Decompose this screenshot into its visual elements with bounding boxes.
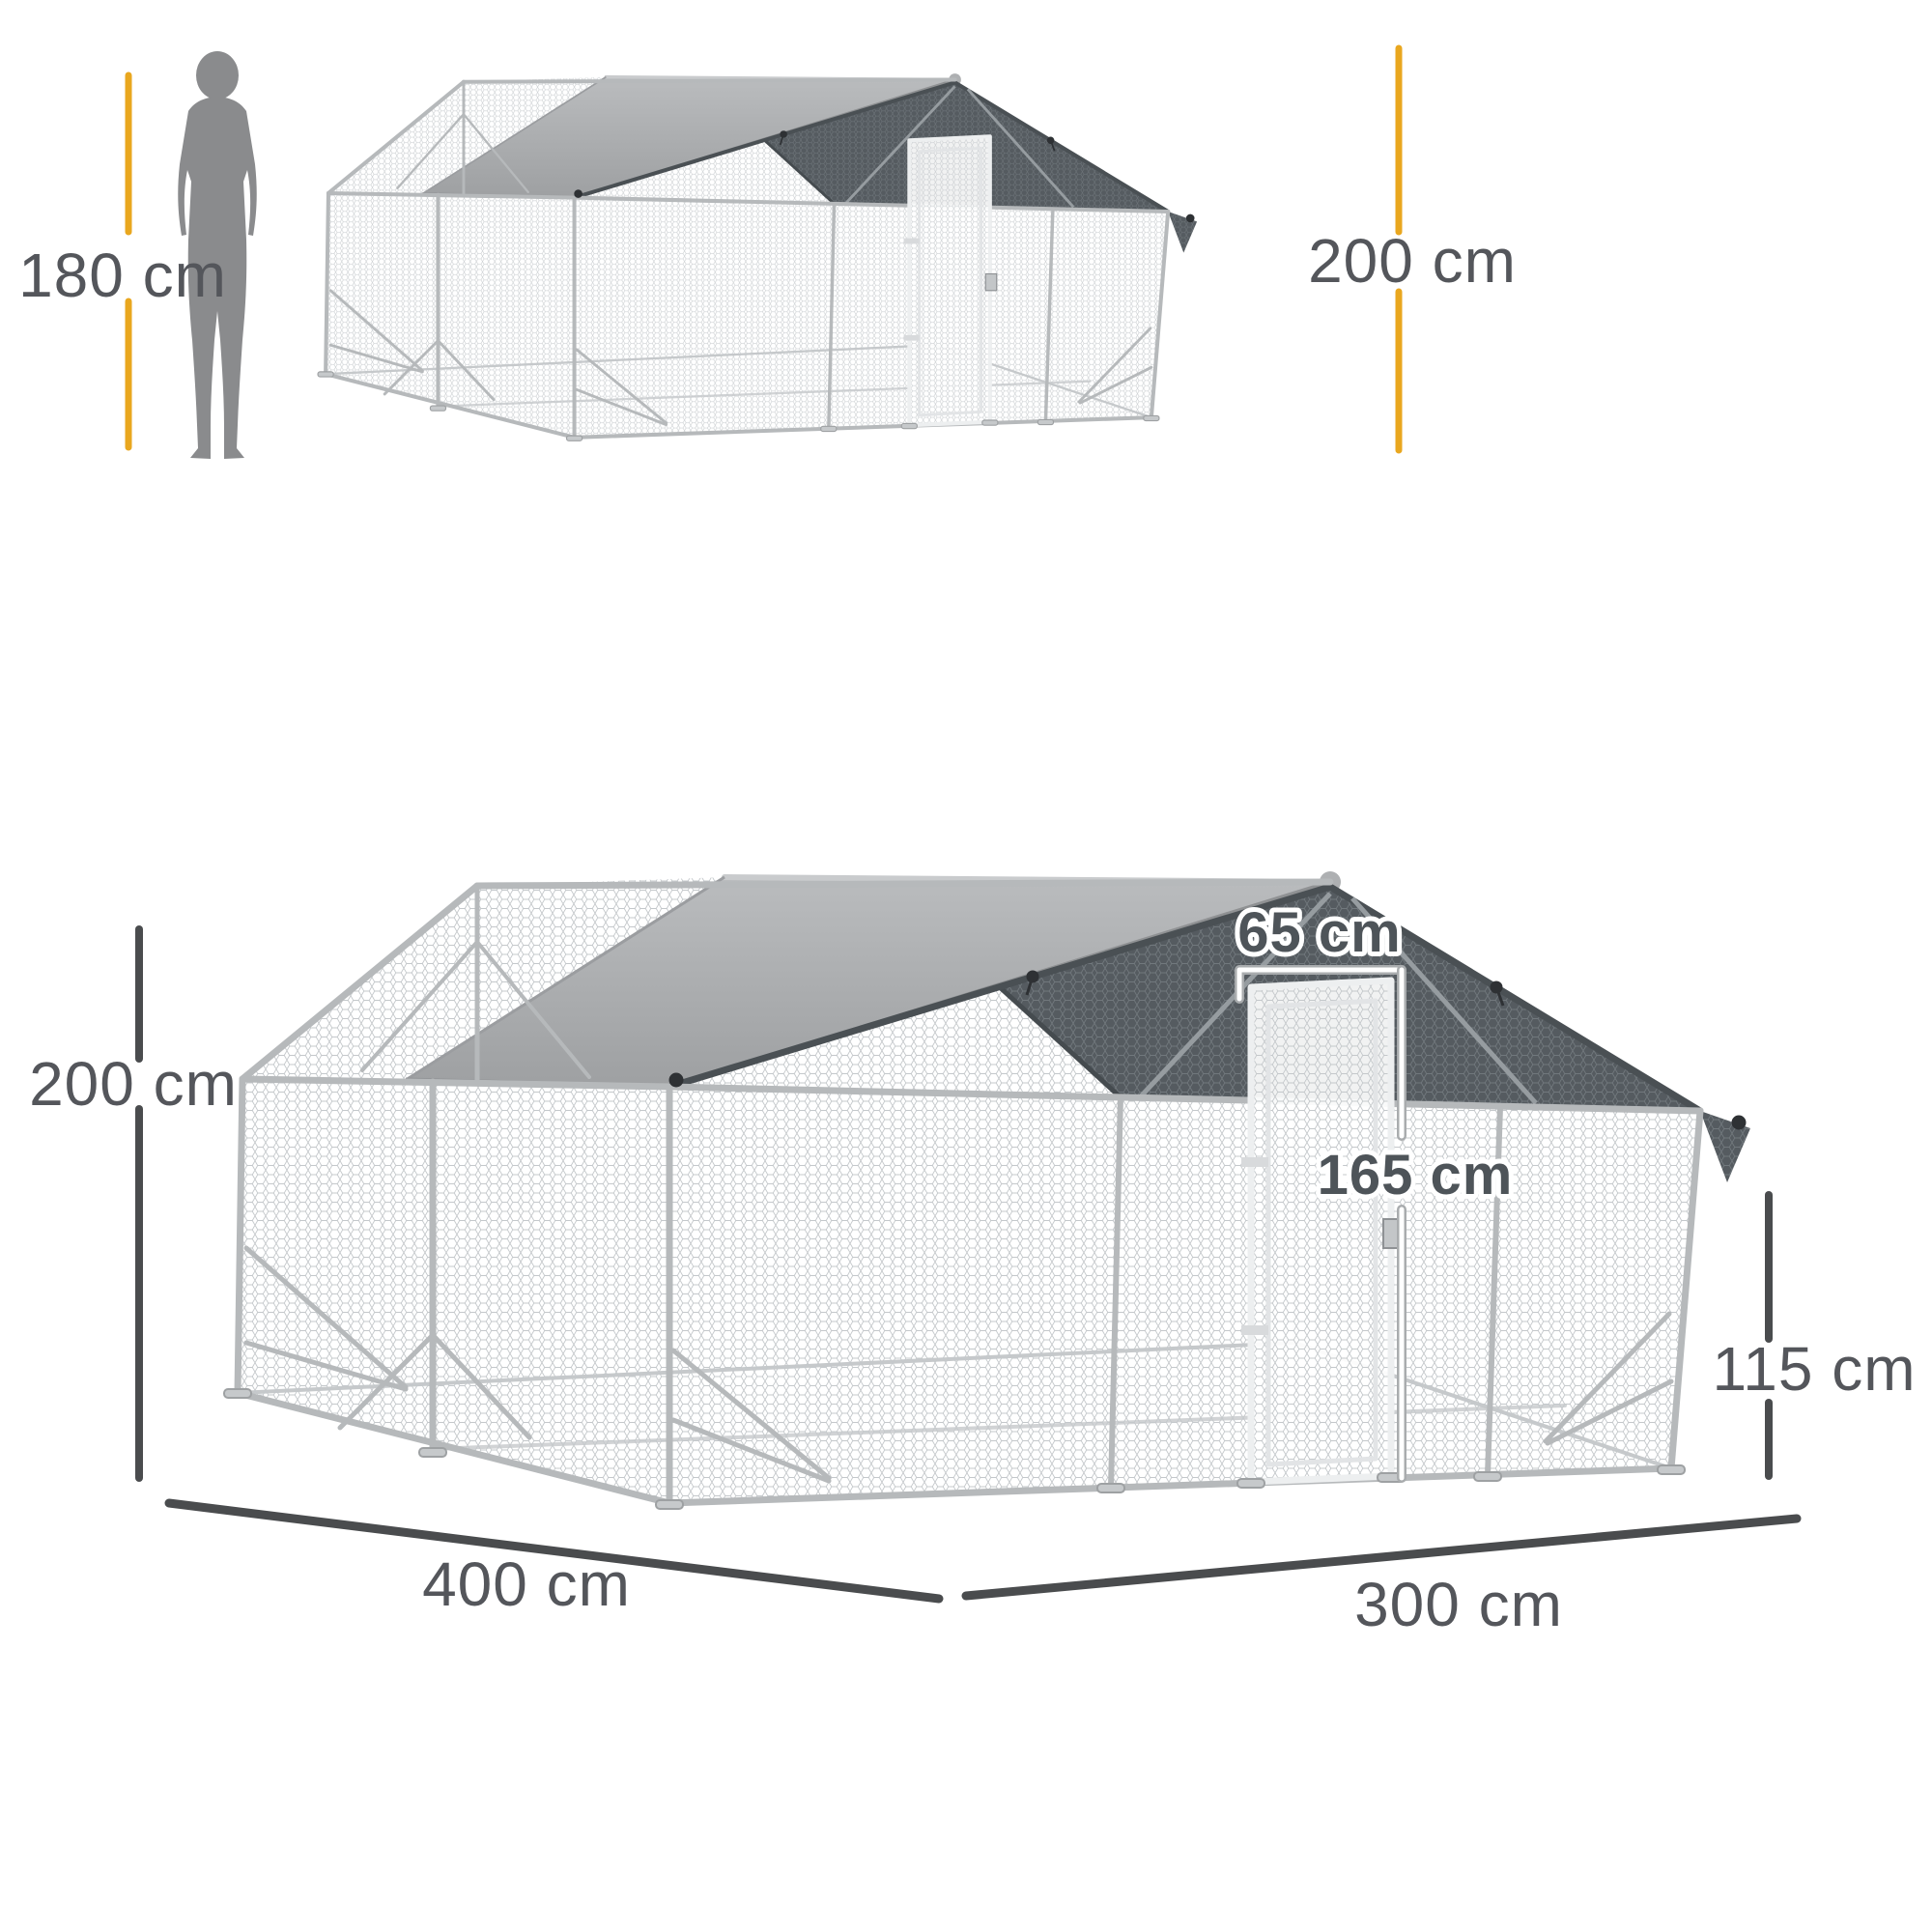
small-coop-height-label: 200 cm bbox=[1308, 226, 1517, 296]
chicken-run-illustration-small bbox=[318, 73, 1197, 440]
length-label: 400 cm bbox=[422, 1549, 631, 1619]
coop-height-label: 200 cm bbox=[29, 1049, 238, 1119]
side-wall-height-label: 115 cm bbox=[1712, 1334, 1916, 1404]
diagram-canvas: 180 cm 200 cm 65 cm 165 cm 200 cm 115 cm… bbox=[0, 0, 1932, 1932]
door-height-label: 165 cm bbox=[1318, 1144, 1514, 1207]
person-height-label: 180 cm bbox=[18, 241, 227, 310]
product-dimension-diagram: 180 cm 200 cm 65 cm 165 cm 200 cm 115 cm… bbox=[0, 0, 1932, 1932]
width-label: 300 cm bbox=[1354, 1570, 1563, 1639]
door-width-label: 65 cm bbox=[1237, 901, 1401, 964]
chicken-run-illustration-large bbox=[224, 871, 1750, 1509]
